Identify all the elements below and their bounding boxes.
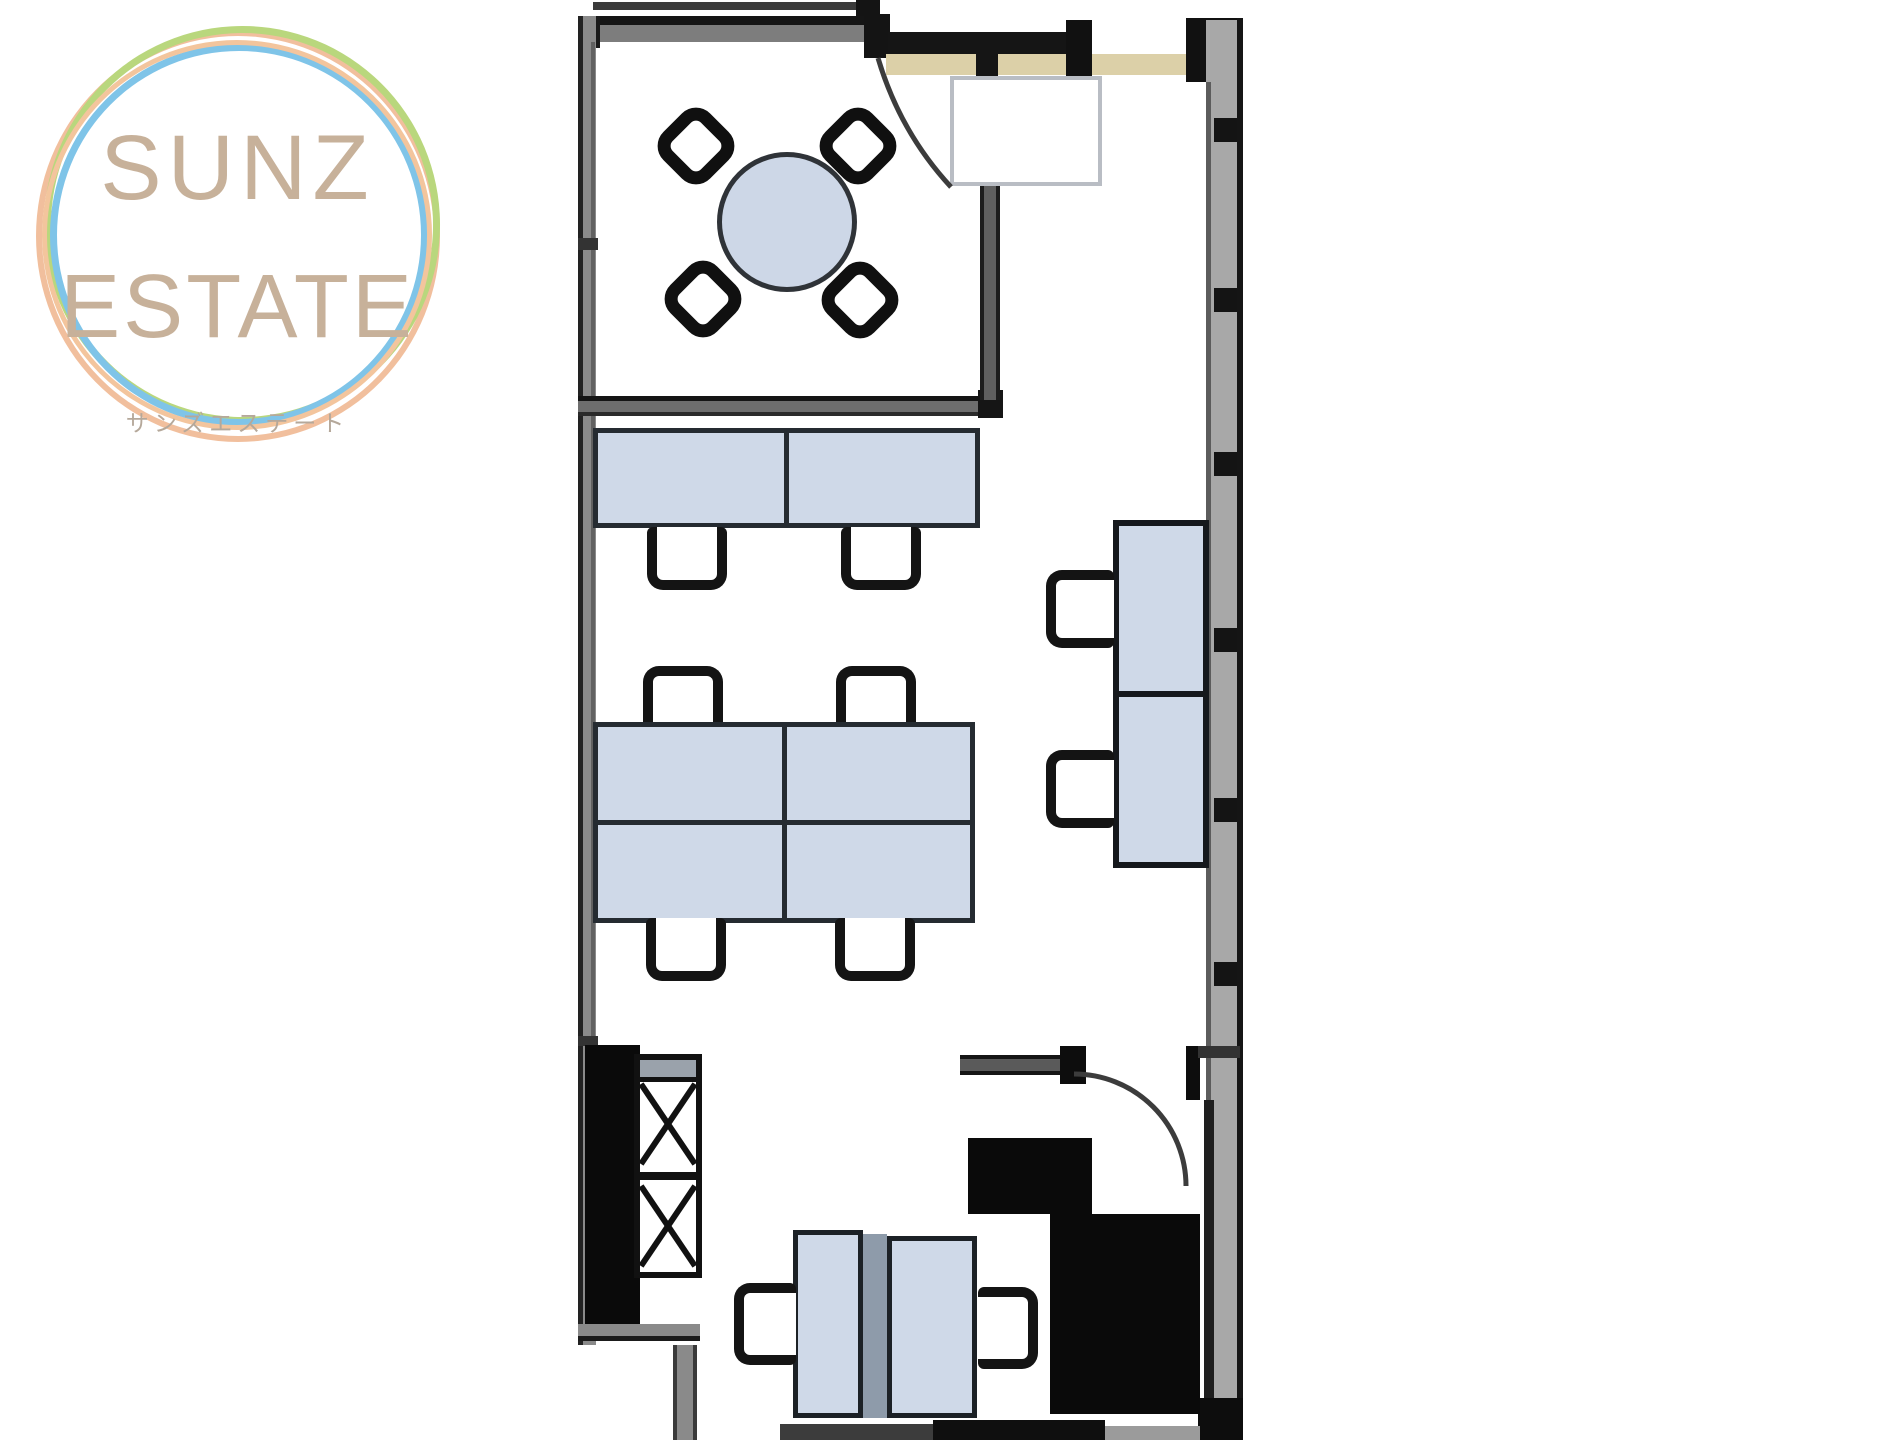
top-wall-meeting-gray — [578, 25, 890, 42]
desk — [1119, 526, 1203, 691]
right-wall-lower-black — [1204, 1100, 1214, 1440]
desk — [598, 727, 782, 820]
office-chair — [1046, 750, 1114, 828]
desk-pair-top — [593, 428, 980, 528]
office-chair — [836, 666, 916, 728]
desk — [787, 825, 971, 918]
entrance-door-leaf — [950, 76, 1102, 186]
meeting-room-right-wall — [980, 185, 1000, 400]
entrance-door-swing-line — [878, 58, 951, 187]
desk — [787, 727, 971, 820]
floor-plan — [0, 0, 1886, 1440]
desk — [887, 1236, 977, 1418]
bottom-left-vertical-wall — [673, 1345, 697, 1440]
window-mullion — [1214, 288, 1237, 312]
window-mullion — [1214, 628, 1237, 652]
desk-divider — [863, 1234, 887, 1418]
lower-door-jamb-stub — [1198, 1046, 1240, 1058]
door-swing-and-hatch-overlay — [0, 0, 1886, 1440]
desk-cluster-2x2 — [593, 722, 975, 923]
lower-partition-wall — [960, 1055, 1066, 1075]
lower-partition-post — [1060, 1046, 1086, 1084]
window-mullion — [1214, 798, 1237, 822]
entry-door-post — [1066, 20, 1092, 82]
desk — [598, 433, 784, 523]
window-mullion — [1214, 118, 1237, 142]
left-wall-outer-line — [578, 16, 583, 1345]
floor-plan-page: SUNZ ESTATE サンズエステート — [0, 0, 1886, 1440]
top-wall-meeting-black — [578, 16, 890, 25]
service-block-left — [585, 1045, 640, 1330]
bottom-wall-segment — [780, 1424, 935, 1440]
service-block-upper — [968, 1138, 1092, 1214]
window-mullion — [1214, 452, 1237, 476]
bottom-right-corner-cap — [1198, 1398, 1243, 1440]
desk — [598, 825, 782, 918]
office-chair — [734, 1283, 796, 1365]
window-mullion — [1214, 962, 1237, 986]
desk — [793, 1230, 863, 1418]
office-chair — [1046, 570, 1114, 648]
office-chair — [647, 527, 727, 590]
office-chair — [978, 1287, 1038, 1369]
bottom-wall-segment — [933, 1420, 1105, 1440]
cabinet-shelf-divider — [640, 1172, 696, 1180]
service-block-lower — [1050, 1214, 1200, 1414]
right-wall-outer-line — [1237, 18, 1243, 1440]
desk — [1119, 697, 1203, 862]
cabinet-top-section — [640, 1060, 696, 1082]
office-chair — [841, 527, 921, 590]
meeting-chair-nw — [649, 99, 742, 192]
meeting-room-bottom-wall — [578, 396, 1002, 416]
office-chair — [643, 666, 723, 728]
left-wall-seam — [578, 238, 598, 250]
bottom-wall-segment — [1105, 1426, 1200, 1440]
top-wall-step-post — [864, 14, 890, 58]
round-meeting-table — [717, 152, 857, 292]
exterior-edge-line-top — [593, 2, 875, 10]
storage-cabinet-hatched — [634, 1054, 702, 1278]
desk-column-window — [1113, 520, 1209, 868]
office-chair — [835, 918, 915, 981]
top-wall-entry-black — [888, 32, 1070, 54]
desk-pair-bottom — [793, 1230, 977, 1418]
office-chair — [646, 918, 726, 981]
bottom-left-wall-cap — [578, 1324, 700, 1341]
desk — [789, 433, 975, 523]
